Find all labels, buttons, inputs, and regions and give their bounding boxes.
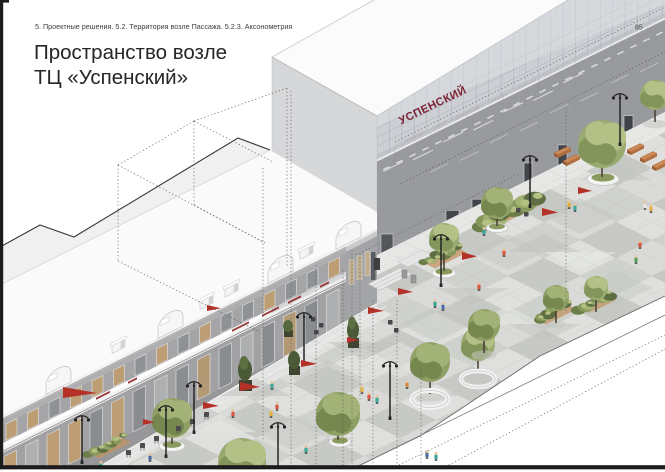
svg-text:Пространство возле: Пространство возле [34, 41, 227, 64]
svg-text:5. Проектные решения. 5.2. Тер: 5. Проектные решения. 5.2. Территория во… [35, 22, 292, 31]
svg-text:65: 65 [635, 25, 643, 32]
svg-text:ТЦ «Успенский»: ТЦ «Успенский» [34, 66, 188, 89]
